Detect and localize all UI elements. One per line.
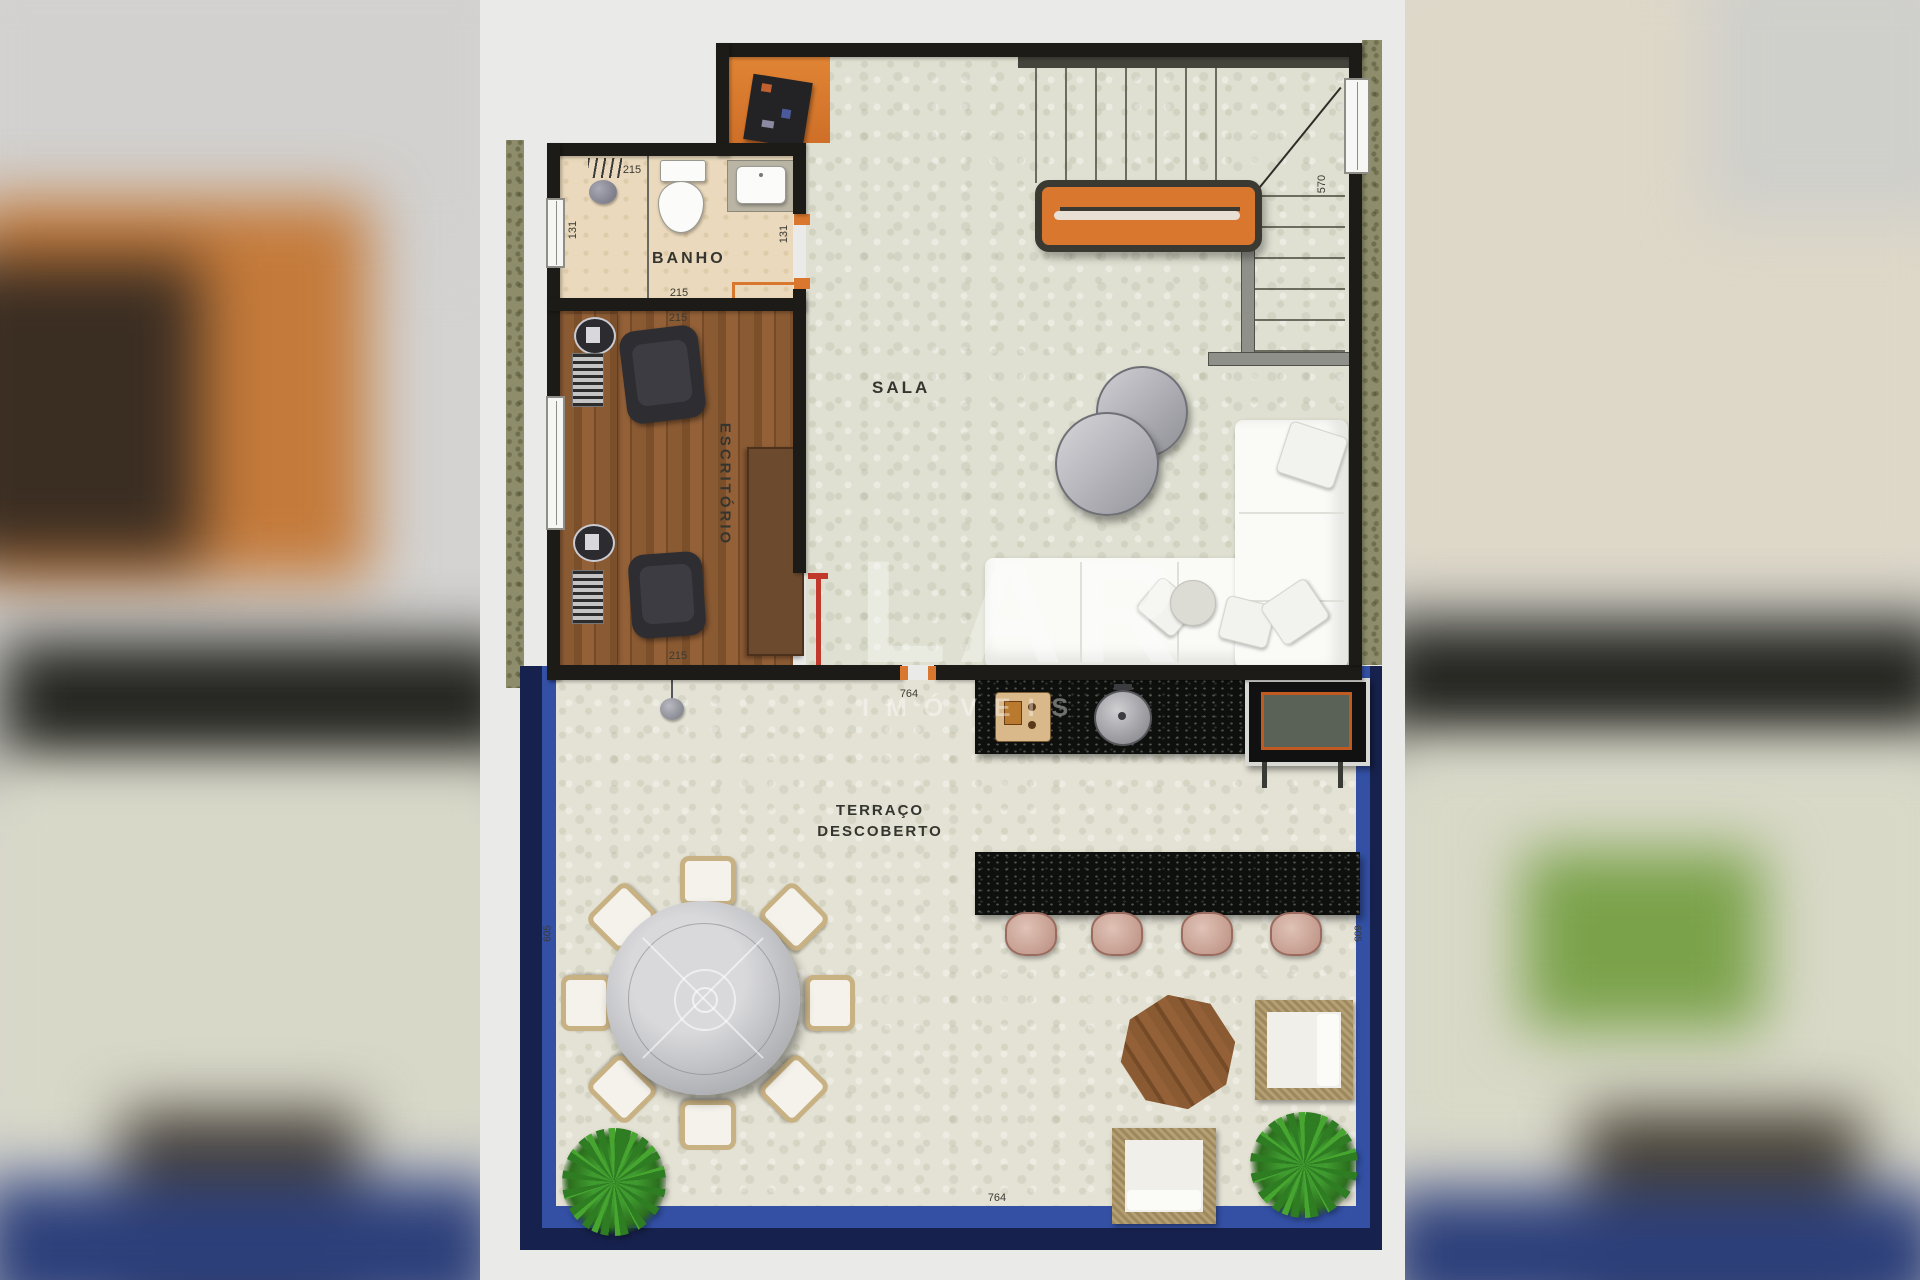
terrace-border-navy-bottom <box>520 1228 1382 1250</box>
wall-top <box>716 43 1362 57</box>
dining-chair-3 <box>805 975 855 1031</box>
stair-bench <box>1035 180 1262 252</box>
dim-stair-flight: 570 <box>1316 167 1328 201</box>
kitchen-round-sink-icon <box>1094 690 1152 746</box>
dining-table-round <box>606 901 800 1095</box>
dim-terrace-left: 605 <box>543 917 554 951</box>
dining-chair-1 <box>680 856 736 906</box>
lounge-armchair-right <box>1255 1000 1353 1100</box>
wall-divider-upper <box>793 156 806 214</box>
coffee-table-round-2 <box>1055 412 1159 516</box>
dining-chair-5 <box>680 1100 736 1150</box>
terrace-border-blue-bottom <box>542 1206 1370 1228</box>
plant-bottom-left <box>562 1128 666 1236</box>
cooktop-icon <box>995 692 1051 742</box>
gourmet-table-leg-2 <box>1338 762 1343 788</box>
stair-upper-flight-treads <box>1035 68 1245 183</box>
dim-terrace-right: 605 <box>1352 917 1363 951</box>
lounge-armchair-bottom <box>1112 1128 1216 1224</box>
office-keyboard-icon-1 <box>572 353 604 407</box>
wall-right-lower <box>1349 170 1362 665</box>
floorplan-screenshot: BANHO ESCRITÓRIO SALA TERRAÇO DESCOBERTO… <box>0 0 1920 1280</box>
stair-right-flight-treads <box>1253 195 1345 353</box>
wall-right-upper <box>1349 43 1362 78</box>
dim-banho-bottom: 215 <box>662 287 696 299</box>
dining-chair-7 <box>561 975 611 1031</box>
wall-divider-middle <box>793 289 806 573</box>
banho-door-jamb-top <box>794 214 810 225</box>
escritorio-label: ESCRITÓRIO <box>717 420 734 550</box>
stair-landing-beam <box>1208 352 1352 366</box>
wall-banho-escritorio <box>547 298 806 311</box>
toilet-tank-icon <box>660 160 706 182</box>
wall-entry-left <box>716 43 729 156</box>
sofa-pouf-round <box>1170 580 1216 626</box>
dim-banho-left: 131 <box>567 213 579 247</box>
office-chair-1 <box>618 324 708 426</box>
office-monitor-icon-2 <box>573 524 615 562</box>
escritorio-door-jamb <box>808 573 828 579</box>
banho-partition-line <box>647 156 649 298</box>
window-banho-left <box>546 198 565 268</box>
office-monitor-icon-1 <box>574 317 616 355</box>
terrace-gourmet-table <box>1245 678 1370 766</box>
stair-top-stringer <box>1018 57 1362 68</box>
banho-label: BANHO <box>652 250 726 268</box>
wall-bottom-right-segment <box>934 665 1362 680</box>
dim-banho-right: 131 <box>778 217 790 251</box>
terrace-label: TERRAÇO DESCOBERTO <box>790 800 970 842</box>
bar-counter <box>975 852 1360 915</box>
office-keyboard-icon-2 <box>572 570 604 624</box>
dim-escritorio-top: 215 <box>661 312 695 324</box>
stair-bench-highlight <box>1054 211 1240 220</box>
plant-right <box>1250 1112 1358 1218</box>
dim-banho-top: 215 <box>615 164 649 176</box>
dim-terrace-bottom: 764 <box>980 1192 1014 1204</box>
gourmet-table-leg-1 <box>1262 762 1267 788</box>
bar-stool-4 <box>1270 912 1322 956</box>
escritorio-door-leaf <box>816 578 821 668</box>
exterior-wall-texture-left <box>506 140 524 688</box>
bar-stool-3 <box>1181 912 1233 956</box>
bar-stool-2 <box>1091 912 1143 956</box>
blurred-background-left <box>0 0 482 1280</box>
terrace-door-jamb-left <box>900 666 908 680</box>
shower-head-icon <box>589 180 617 204</box>
sala-label: SALA <box>872 378 930 398</box>
bar-stool-1 <box>1005 912 1057 956</box>
terrace-label-line2: DESCOBERTO <box>790 821 970 842</box>
office-chair-2 <box>627 551 707 640</box>
terrace-door-jamb-right <box>928 666 936 680</box>
dim-terrace-top: 764 <box>892 688 926 700</box>
bath-sink-icon <box>736 166 786 204</box>
wall-bottom-left-segment <box>547 665 902 680</box>
blurred-background-right <box>1403 0 1920 1280</box>
banho-door-jamb-bottom <box>794 278 810 289</box>
outdoor-shower-icon <box>660 698 684 720</box>
dim-escritorio-bottom: 215 <box>661 650 695 662</box>
terrace-border-navy-right <box>1370 666 1382 1250</box>
terrace-label-line1: TERRAÇO <box>790 800 970 821</box>
wall-banho-top <box>547 143 806 156</box>
entry-game-table <box>743 74 813 149</box>
window-stair-right <box>1344 78 1370 174</box>
window-escritorio-left <box>546 396 565 530</box>
